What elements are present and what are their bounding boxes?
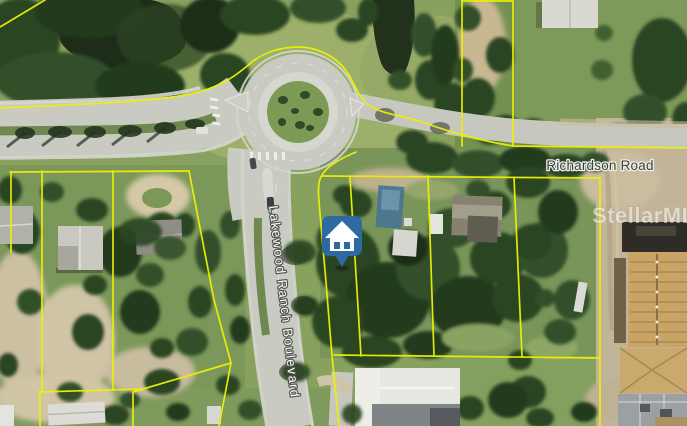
- map-canvas[interactable]: Richardson Road Lakewood Ranch Boulevard…: [0, 0, 687, 426]
- shed-south: [207, 406, 221, 424]
- house-north-east: [536, 0, 598, 28]
- trailer-home: [48, 401, 106, 425]
- road-label-richardson: Richardson Road: [546, 158, 653, 173]
- pool: [376, 185, 405, 229]
- house-west-2: [56, 226, 103, 273]
- church-building: [318, 368, 460, 426]
- stellar-mls-watermark: StellarMLS: [592, 203, 687, 228]
- shed-white: [392, 229, 418, 257]
- satellite-map-view[interactable]: Richardson Road Lakewood Ranch Boulevard…: [0, 0, 687, 426]
- house-west-1: [0, 206, 33, 244]
